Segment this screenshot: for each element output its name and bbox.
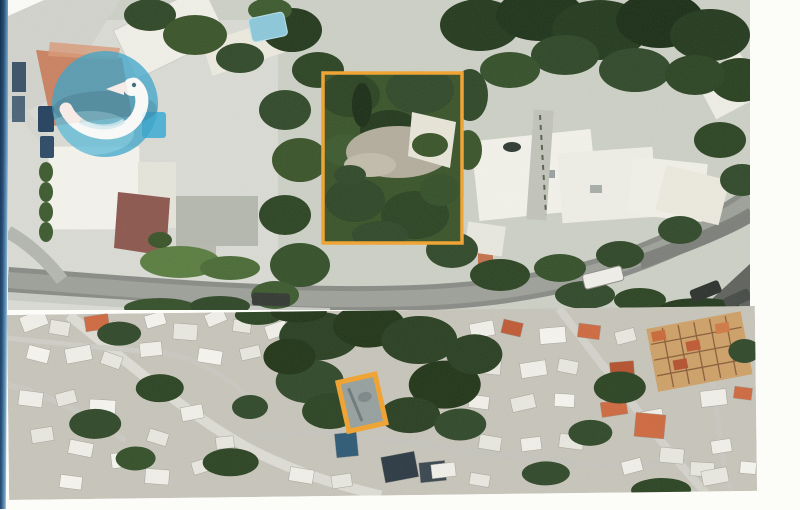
satellite-photo-context: [7, 306, 757, 500]
satellite-photo-context-canvas: [7, 306, 757, 500]
photo-grain-bottom: [7, 306, 757, 500]
scanned-page: [0, 0, 800, 510]
watermark-logo: [50, 49, 160, 159]
watermark-logo-canvas: [50, 49, 160, 159]
pelican-eye: [132, 83, 136, 87]
